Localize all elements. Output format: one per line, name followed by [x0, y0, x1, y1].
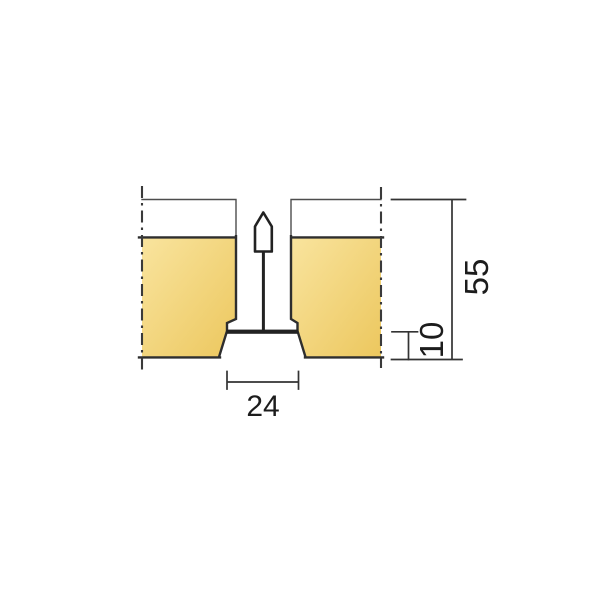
right-tile-face-outline — [291, 200, 381, 238]
left-tile-face-outline — [142, 200, 236, 238]
t-grid-profile — [227, 213, 299, 334]
profile-bulb — [255, 213, 272, 252]
ceiling-tile-cross-section-diagram: 24 10 55 — [0, 0, 600, 600]
grid-width-label: 24 — [246, 390, 279, 423]
total-height-label: 55 — [458, 259, 495, 296]
right-ceiling-tile — [291, 200, 383, 358]
left-tile-body — [142, 237, 236, 357]
edge-height-label: 10 — [413, 322, 450, 359]
dimension-grid-width: 24 — [227, 372, 299, 424]
profile-flange — [227, 330, 299, 334]
grid-width-dim-lines — [227, 372, 299, 390]
right-tile-body — [291, 237, 381, 357]
technical-diagram-page: 24 10 55 — [0, 0, 600, 600]
left-ceiling-tile — [139, 200, 236, 358]
dimension-edge-height: 10 — [392, 322, 450, 360]
